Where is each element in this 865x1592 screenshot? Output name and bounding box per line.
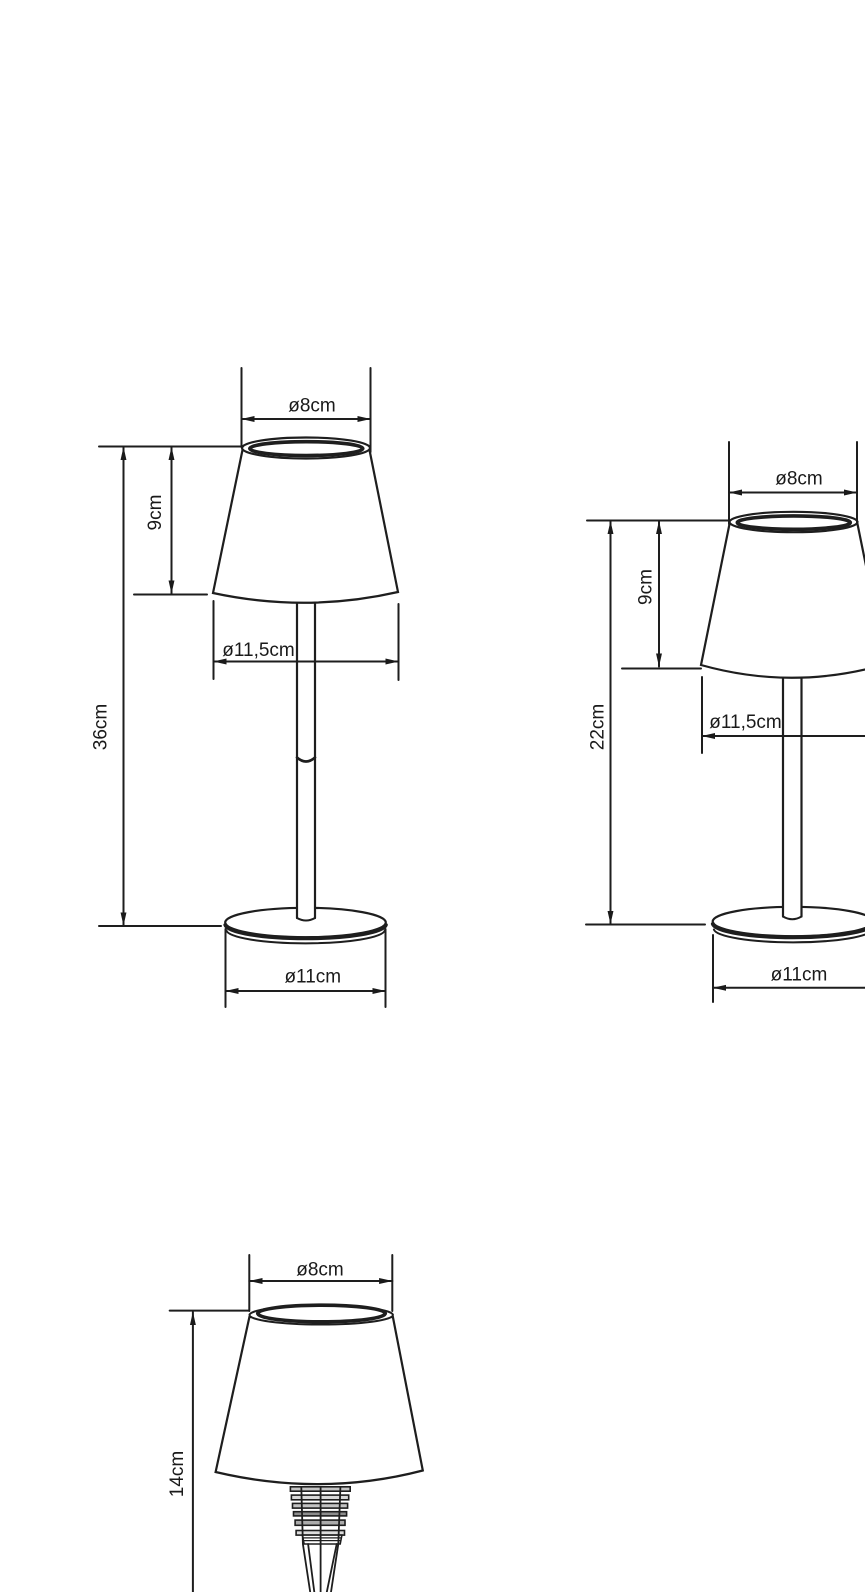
svg-text:ø11cm: ø11cm <box>284 967 341 988</box>
svg-text:22cm: 22cm <box>588 704 609 750</box>
svg-text:9cm: 9cm <box>145 495 166 531</box>
svg-text:ø8cm: ø8cm <box>296 1260 344 1281</box>
svg-text:ø11,5cm: ø11,5cm <box>222 640 295 661</box>
svg-text:14cm: 14cm <box>167 1451 188 1497</box>
svg-text:9cm: 9cm <box>636 569 657 605</box>
svg-text:ø11,5cm: ø11,5cm <box>709 712 782 733</box>
svg-text:36cm: 36cm <box>91 704 112 750</box>
svg-text:ø8cm: ø8cm <box>775 469 823 490</box>
svg-text:ø8cm: ø8cm <box>288 396 336 417</box>
svg-text:ø11cm: ø11cm <box>771 965 828 986</box>
